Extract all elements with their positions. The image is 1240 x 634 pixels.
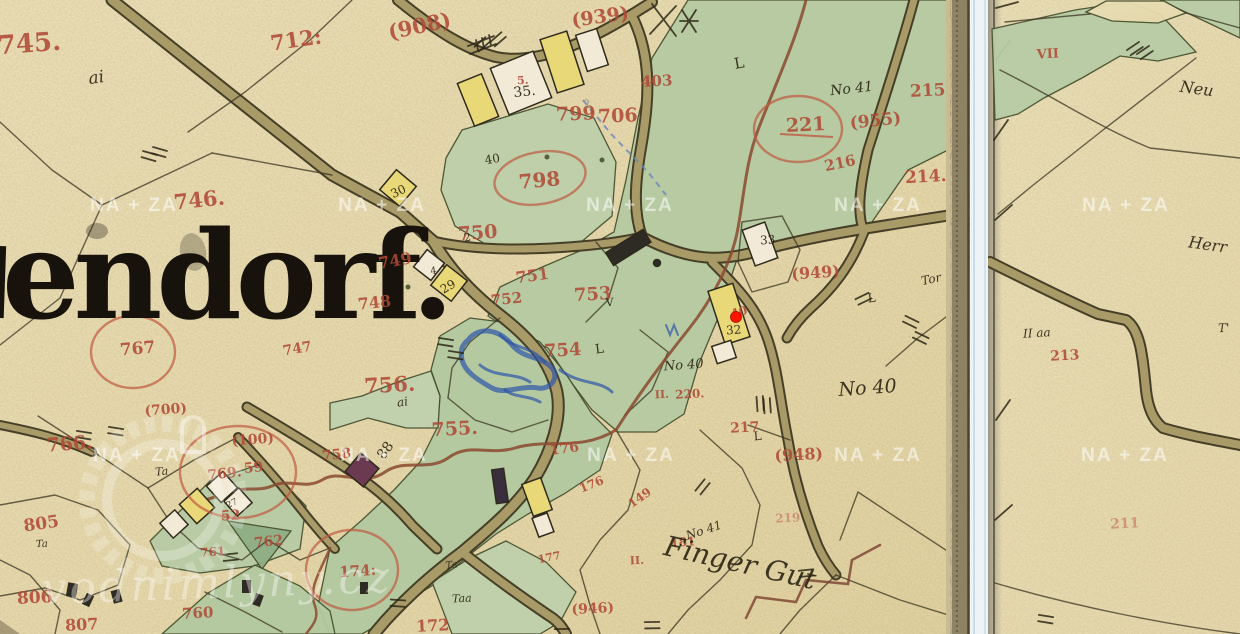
parcel-number-label: 213 [1050,347,1080,365]
parcel-number-label: (948) [774,444,823,466]
parcel-number-label: 706 [598,104,638,127]
na-za-watermark: NA + ZA [340,445,428,466]
parcel-number-label: (946) [571,600,614,618]
na-za-watermark: NA + ZA [834,195,922,216]
parcel-number-label: 221 [785,113,826,137]
map-viewer: endorf. [0,0,1240,634]
parcel-number-label: (949) [791,261,841,283]
na-za-watermark: NA + ZA [587,445,675,466]
village-name-label: endorf. [2,203,448,347]
annotation-label: ai [396,394,409,409]
parcel-number-label: 746. [172,184,225,214]
sheet-gap [970,0,988,634]
parcel-number-label: 766. [46,431,94,456]
parcel-number-label: 807 [65,614,99,634]
parcel-number-label: 767 [119,338,156,361]
parcel-number-label: (100) [231,431,274,450]
sheet-edge-left [946,0,969,634]
annotation-label: ai [87,67,105,89]
map-marker-dot[interactable] [731,312,742,323]
cadastral-map-canvas[interactable]: endorf. [0,0,1240,634]
parcel-number-label: 59 [243,459,264,477]
na-za-watermark: NA + ZA [1082,195,1170,216]
parcel-number-label: 214. [905,166,947,188]
map-sheet-left: endorf. [0,0,958,634]
annotation-label: No 40 [662,357,704,375]
na-za-watermark: NA + ZA [834,445,922,466]
annotation-label: No 40 [837,375,898,401]
parcel-number-label: 745. [0,27,62,61]
parcel-number-label: 220. [675,386,705,402]
annotation-label: 32 [726,322,742,337]
annotation-label: 35. [513,83,537,101]
annotation-label: Ta [36,539,48,551]
parcel-number-label: 755. [431,417,478,441]
na-za-watermark: NA + ZA [338,195,426,216]
annotation-label: II aa [1022,325,1051,340]
parcel-number-label: II. [654,388,669,402]
parcel-number-label: 756. [363,371,415,399]
parcel-number-label: 211 [1110,515,1140,533]
parcel-number-label: 752 [490,288,523,309]
parcel-number-label: 403 [641,71,673,91]
annotation-label: L [867,291,876,306]
parcel-number-label: VII [1035,46,1059,62]
annotation-label: T' [1218,321,1230,336]
parcel-number-label: 762 [253,533,284,552]
annotation-label: 40 [484,151,501,167]
annotation-label: L [753,429,762,444]
na-za-watermark: NA + ZA [586,195,674,216]
na-za-watermark: NA + ZA [90,195,178,216]
parcel-number-label: II. [629,554,644,568]
annotation-label: Taa [452,592,472,606]
annotation-label: Ta [445,559,458,572]
annotation-label: 33 [760,232,776,247]
parcel-number-label: 172 [416,615,450,634]
parcel-number-label: 748 [357,291,392,313]
parcel-number-label: 215 [909,80,945,102]
parcel-number-label: 798 [518,166,562,194]
parcel-number-label: 219 [775,510,801,525]
annotation-label: Ta [155,464,169,478]
na-za-watermark: NA + ZA [1081,445,1169,466]
parcel-number-label: 754 [543,339,582,362]
